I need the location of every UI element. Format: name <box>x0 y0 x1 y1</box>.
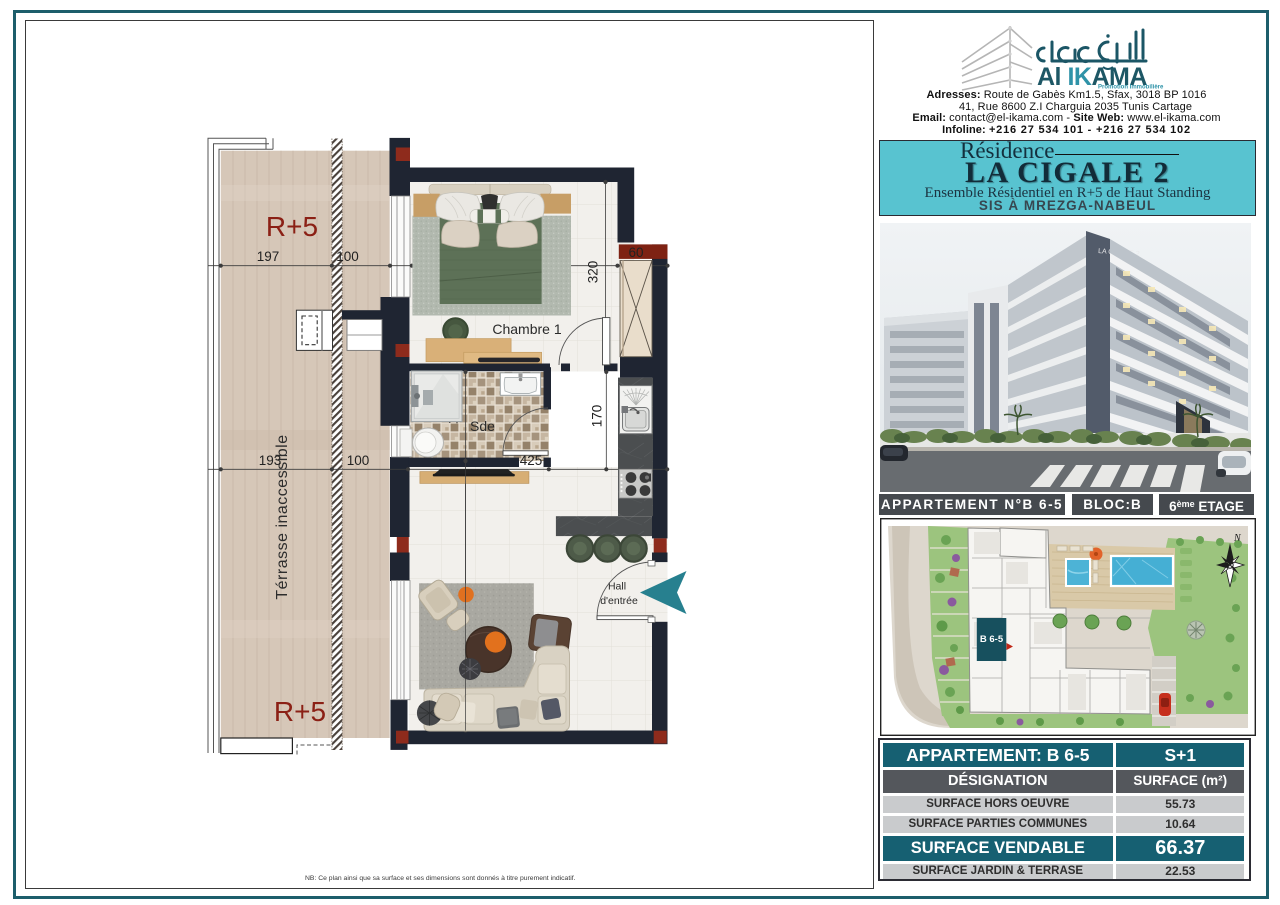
svg-text:B 6-5: B 6-5 <box>980 634 1004 645</box>
svg-text:Sde: Sde <box>470 418 495 434</box>
svg-text:197: 197 <box>257 249 280 264</box>
svg-text:Chambre 1: Chambre 1 <box>492 321 561 337</box>
svg-text:193: 193 <box>259 453 282 468</box>
svg-text:N: N <box>1233 533 1242 544</box>
svg-text:R+5: R+5 <box>274 696 326 727</box>
svg-text:Hall: Hall <box>608 581 626 593</box>
svg-text:170: 170 <box>590 405 605 428</box>
svg-text:320: 320 <box>586 261 601 284</box>
svg-text:100: 100 <box>347 453 370 468</box>
svg-text:60: 60 <box>628 245 643 260</box>
svg-text:R+5: R+5 <box>266 211 318 242</box>
svg-text:100: 100 <box>336 249 359 264</box>
svg-text:d'entrée: d'entrée <box>600 595 638 607</box>
